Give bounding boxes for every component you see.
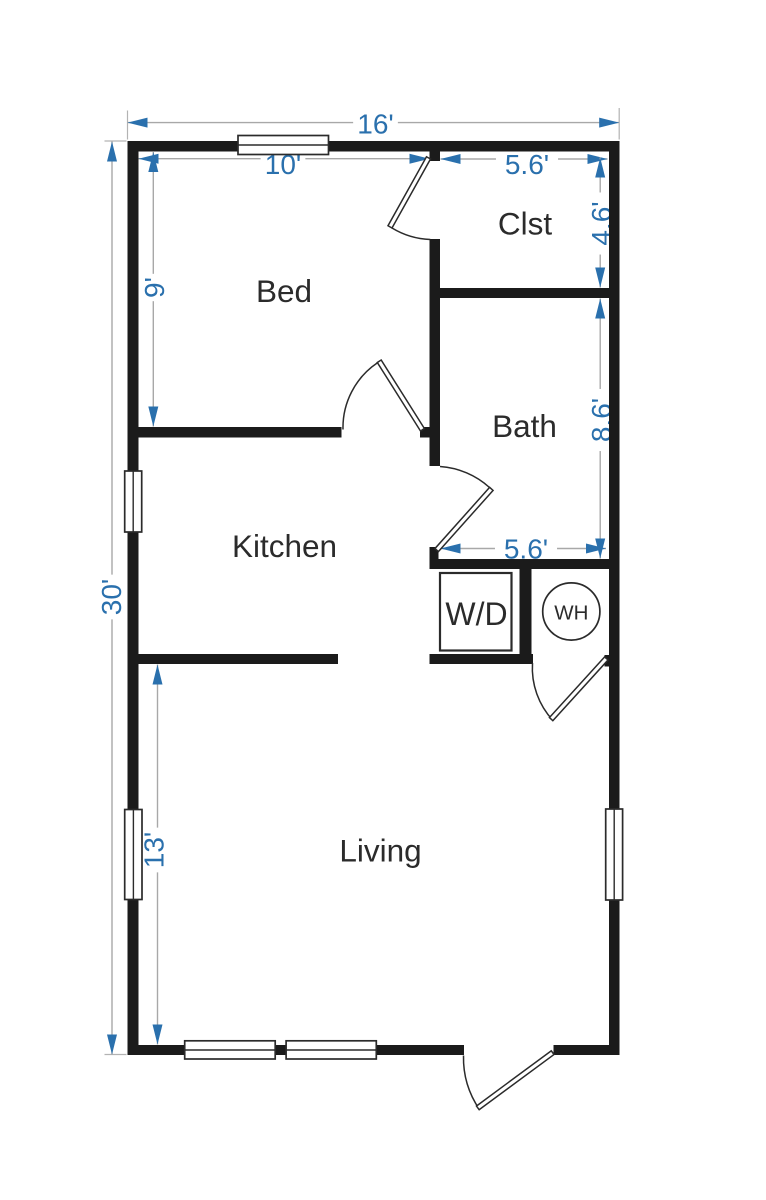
svg-text:16': 16' — [357, 109, 394, 140]
svg-text:5.6': 5.6' — [505, 149, 549, 180]
svg-text:9': 9' — [139, 277, 170, 298]
svg-text:W/D: W/D — [445, 596, 507, 632]
svg-text:Bath: Bath — [492, 408, 557, 444]
svg-text:Kitchen: Kitchen — [232, 528, 337, 564]
svg-text:30': 30' — [96, 579, 127, 616]
svg-text:Bed: Bed — [256, 273, 312, 309]
svg-text:Living: Living — [339, 832, 421, 868]
svg-text:Clst: Clst — [498, 205, 552, 241]
svg-text:WH: WH — [554, 601, 588, 624]
svg-text:13': 13' — [139, 832, 170, 869]
